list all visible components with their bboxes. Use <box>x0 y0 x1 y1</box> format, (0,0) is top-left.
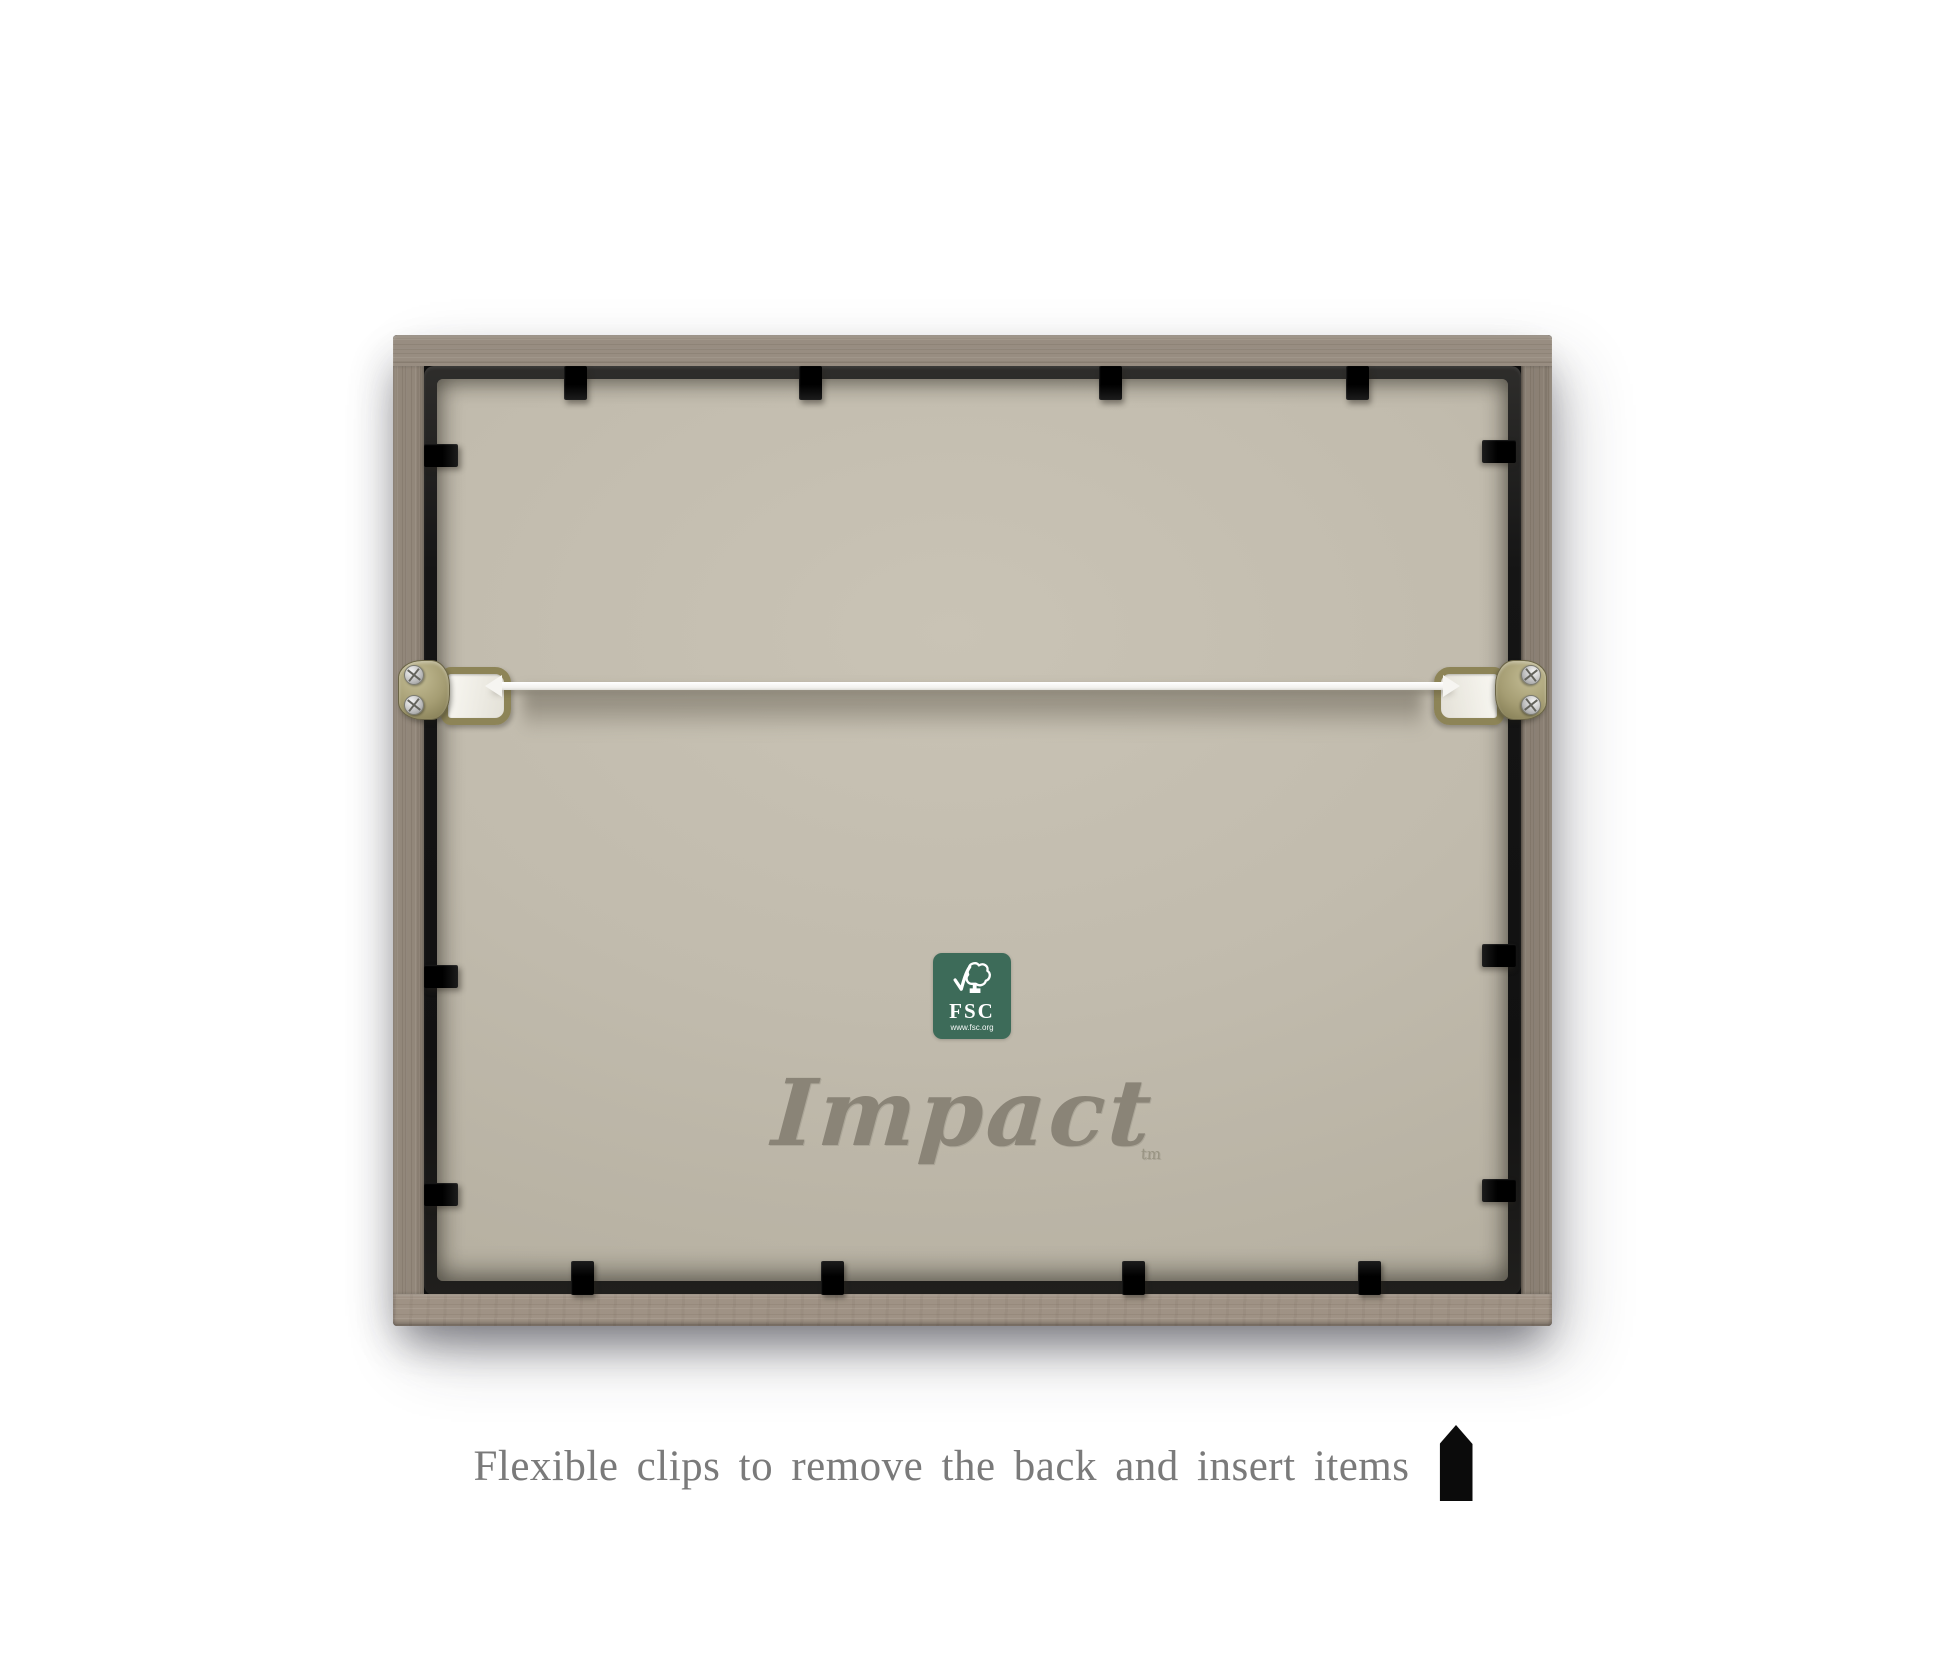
flexible-clip <box>564 366 587 400</box>
product-photo: FSC www.fsc.org Impacttm Flexible clips … <box>0 0 1946 1665</box>
screw-icon <box>404 695 424 715</box>
brand-logo: Impacttm <box>389 1063 1557 1190</box>
flexible-clip <box>1346 366 1369 400</box>
flexible-clip <box>799 366 822 400</box>
trademark-mark: tm <box>1140 1145 1162 1163</box>
flexible-clip <box>1482 944 1516 967</box>
fsc-acronym: FSC <box>949 1000 995 1022</box>
caption-row: Flexible clips to remove the back and in… <box>0 1424 1946 1508</box>
fsc-url: www.fsc.org <box>950 1022 993 1034</box>
wire-shadow <box>523 691 1422 733</box>
flexible-clip <box>424 965 458 988</box>
flexible-clip <box>821 1261 844 1295</box>
frame-back: FSC www.fsc.org Impacttm <box>393 335 1552 1326</box>
hanger-plate <box>1495 660 1547 720</box>
screw-icon <box>404 665 424 685</box>
frame-edge-top <box>393 335 1552 366</box>
fsc-label: FSC www.fsc.org <box>933 953 1011 1039</box>
flexible-clip <box>1099 366 1122 400</box>
flexible-clip <box>424 1183 458 1206</box>
flexible-clip <box>1358 1261 1381 1295</box>
caption-text: Flexible clips to remove the back and in… <box>473 1442 1409 1491</box>
flexible-clip <box>1482 1179 1516 1202</box>
brand-name: Impact <box>769 1059 1157 1167</box>
screw-icon <box>1521 665 1541 685</box>
flexible-clip-icon <box>1440 1425 1473 1501</box>
frame-edge-bottom <box>393 1294 1552 1326</box>
flexible-clip <box>1482 440 1516 463</box>
hanging-wire <box>491 682 1454 690</box>
flexible-clip <box>1122 1261 1145 1295</box>
screw-icon <box>1521 695 1541 715</box>
hanger-plate <box>398 660 450 720</box>
flexible-clip <box>424 444 458 467</box>
flexible-clip <box>571 1261 594 1295</box>
fsc-tree-check-icon <box>949 960 995 1000</box>
